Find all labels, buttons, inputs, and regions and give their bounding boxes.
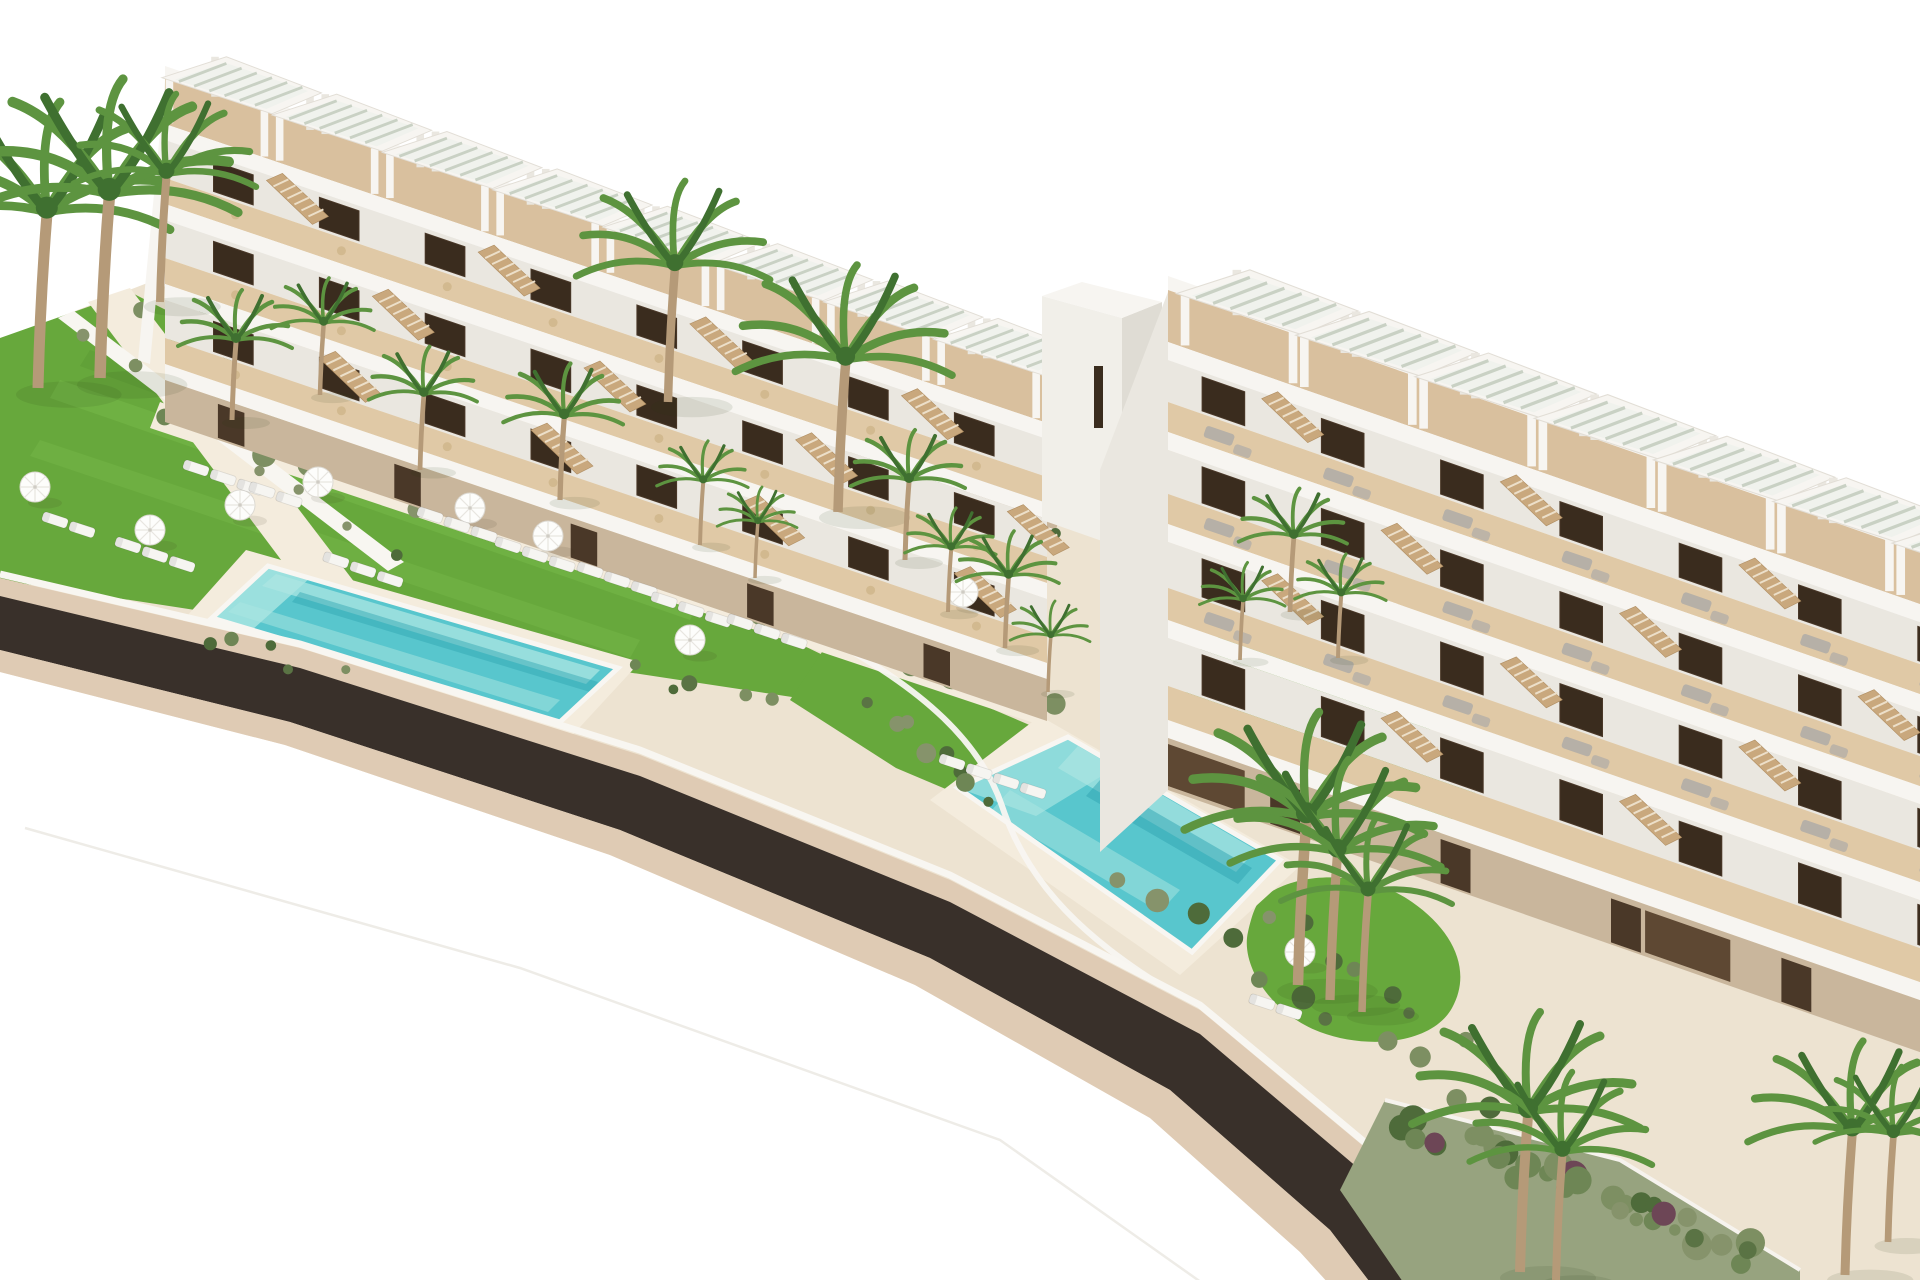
balcony-furniture [760,550,769,559]
shrub [1652,1202,1676,1226]
shrub [1263,911,1276,924]
shrub [283,664,293,674]
shrub [766,693,779,706]
shrub [740,689,753,702]
shrub [630,659,641,670]
balcony-furniture [654,354,663,363]
shrub [1109,872,1125,888]
render-canvas [0,0,1920,1280]
shrub [294,484,304,494]
shrub [956,773,975,792]
shrub [266,640,277,651]
balcony-furniture [760,390,769,399]
balcony-furniture [866,586,875,595]
shrub [1685,1229,1704,1248]
shrub [901,715,915,729]
shrub [1611,1202,1629,1220]
shrub [916,743,936,763]
balcony-furniture [972,462,981,471]
shrub [77,329,90,342]
tower-slit-window [1094,366,1103,428]
balcony-furniture [654,434,663,443]
shrub [391,549,403,561]
shrub [1378,1031,1397,1050]
shrub [254,466,264,476]
shrub [862,697,873,708]
shrub [669,685,679,695]
balcony-furniture [337,406,346,415]
shrub [224,632,238,646]
shrub [1410,1046,1431,1067]
balcony-furniture [337,246,346,255]
shrub [1405,1129,1426,1150]
shrub [1739,1241,1757,1259]
shrub [1564,1166,1592,1194]
shrub [341,665,350,674]
shrub [1188,903,1210,925]
shrub [342,521,351,530]
balcony-furniture [866,426,875,435]
aerial-render [0,0,1920,1280]
balcony-furniture [443,282,452,291]
balcony-furniture [549,478,558,487]
shrub [1711,1234,1733,1256]
balcony-furniture [760,470,769,479]
shrub [1630,1213,1643,1226]
shrub [1223,928,1243,948]
balcony-furniture [654,514,663,523]
shrub [1669,1224,1680,1235]
shrub [1146,889,1170,913]
shrub [983,797,993,807]
balcony-furniture [443,442,452,451]
shrub [1251,971,1268,988]
shrub [681,675,697,691]
shrub [1424,1133,1444,1153]
balcony-furniture [972,622,981,631]
balcony-furniture [337,326,346,335]
balcony-furniture [549,318,558,327]
shrub [1678,1208,1697,1227]
shrub [204,637,217,650]
